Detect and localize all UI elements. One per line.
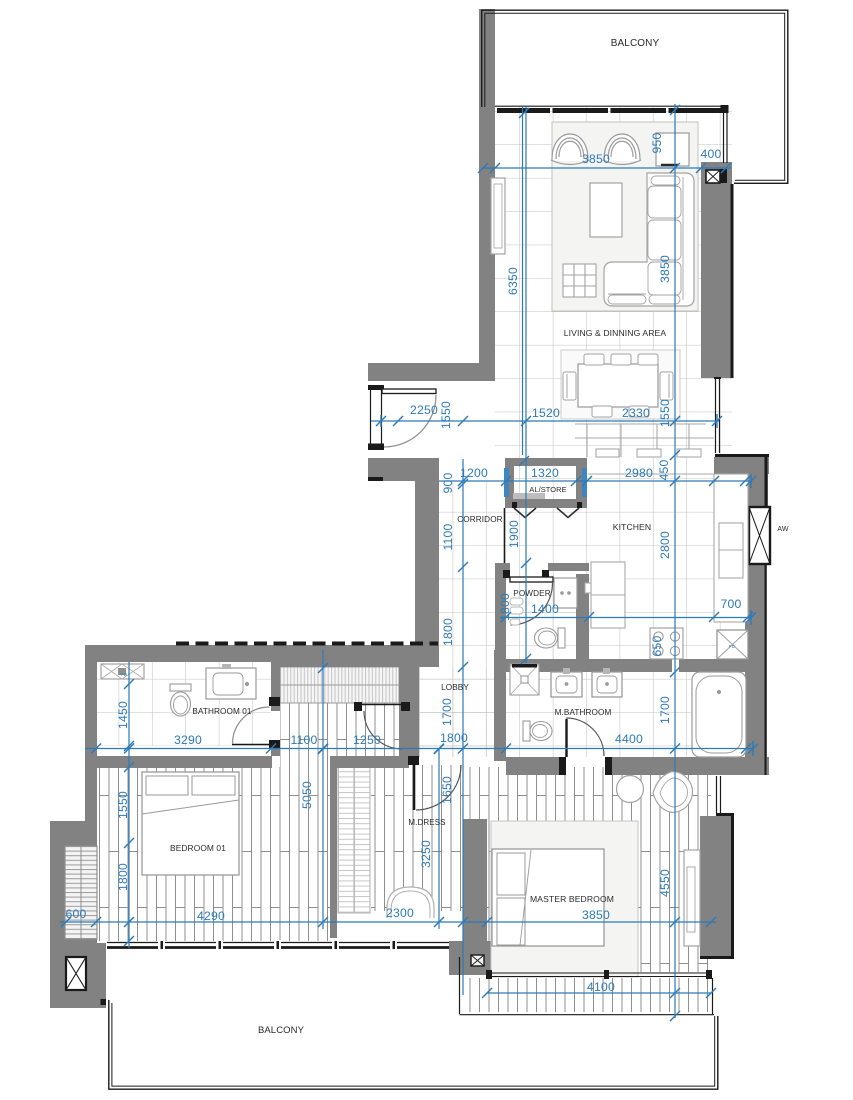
svg-text:400: 400 (701, 147, 722, 161)
svg-text:M.DRESS: M.DRESS (408, 818, 445, 827)
svg-text:M.BATHROOM: M.BATHROOM (555, 708, 612, 717)
svg-text:1800: 1800 (441, 618, 455, 646)
svg-text:950: 950 (650, 133, 664, 154)
svg-text:4400: 4400 (615, 732, 643, 746)
svg-text:1800: 1800 (116, 863, 130, 891)
svg-text:3850: 3850 (582, 908, 610, 922)
svg-text:3290: 3290 (174, 733, 202, 747)
svg-text:3250: 3250 (419, 840, 433, 868)
svg-text:LIVING & DINNING AREA: LIVING & DINNING AREA (564, 328, 667, 338)
svg-text:450: 450 (657, 460, 671, 481)
svg-text:3850: 3850 (582, 152, 610, 166)
svg-text:1900: 1900 (507, 520, 521, 548)
svg-text:1700: 1700 (440, 698, 454, 726)
svg-text:4290: 4290 (197, 909, 225, 923)
svg-text:1550: 1550 (116, 791, 130, 819)
svg-text:700: 700 (721, 597, 742, 611)
svg-text:BALCONY: BALCONY (258, 1025, 305, 1036)
svg-text:BATHROOM 01: BATHROOM 01 (192, 707, 252, 716)
svg-text:1100: 1100 (290, 733, 317, 747)
svg-text:1800: 1800 (498, 593, 512, 621)
svg-text:AW: AW (777, 526, 789, 533)
svg-text:1100: 1100 (441, 523, 455, 550)
svg-text:3850: 3850 (658, 255, 672, 283)
svg-text:1700: 1700 (658, 696, 672, 724)
svg-text:1320: 1320 (531, 466, 559, 480)
svg-text:1650: 1650 (440, 776, 454, 804)
svg-text:5050: 5050 (300, 781, 314, 809)
svg-text:650: 650 (650, 636, 664, 657)
svg-text:4550: 4550 (658, 869, 672, 897)
svg-text:6350: 6350 (506, 267, 520, 295)
svg-text:1250: 1250 (353, 733, 381, 747)
svg-text:2250: 2250 (410, 403, 438, 417)
svg-text:1200: 1200 (460, 466, 488, 480)
svg-text:2300: 2300 (386, 906, 414, 920)
svg-text:BALCONY: BALCONY (611, 38, 660, 49)
svg-text:FD: FD (121, 672, 128, 677)
svg-text:CORRIDOR: CORRIDOR (457, 515, 502, 524)
svg-text:1800: 1800 (440, 731, 468, 745)
svg-text:AL/STORE: AL/STORE (529, 485, 566, 494)
svg-text:1520: 1520 (532, 406, 560, 420)
svg-text:900: 900 (441, 473, 455, 494)
svg-text:1400: 1400 (531, 602, 559, 616)
svg-text:MASTER BEDROOM: MASTER BEDROOM (530, 894, 614, 904)
svg-text:600: 600 (66, 907, 87, 921)
svg-text:1550: 1550 (439, 401, 453, 429)
svg-text:POWDER: POWDER (513, 589, 550, 598)
svg-text:FD: FD (729, 644, 736, 649)
svg-text:BEDROOM 01: BEDROOM 01 (170, 843, 226, 853)
svg-text:LOBBY: LOBBY (441, 683, 469, 692)
svg-text:2800: 2800 (658, 531, 672, 559)
svg-text:4100: 4100 (587, 980, 615, 994)
svg-text:2980: 2980 (625, 466, 653, 480)
svg-text:1450: 1450 (116, 701, 130, 729)
svg-text:KITCHEN: KITCHEN (613, 522, 651, 532)
svg-text:2330: 2330 (622, 406, 650, 420)
svg-text:1550: 1550 (658, 399, 672, 427)
